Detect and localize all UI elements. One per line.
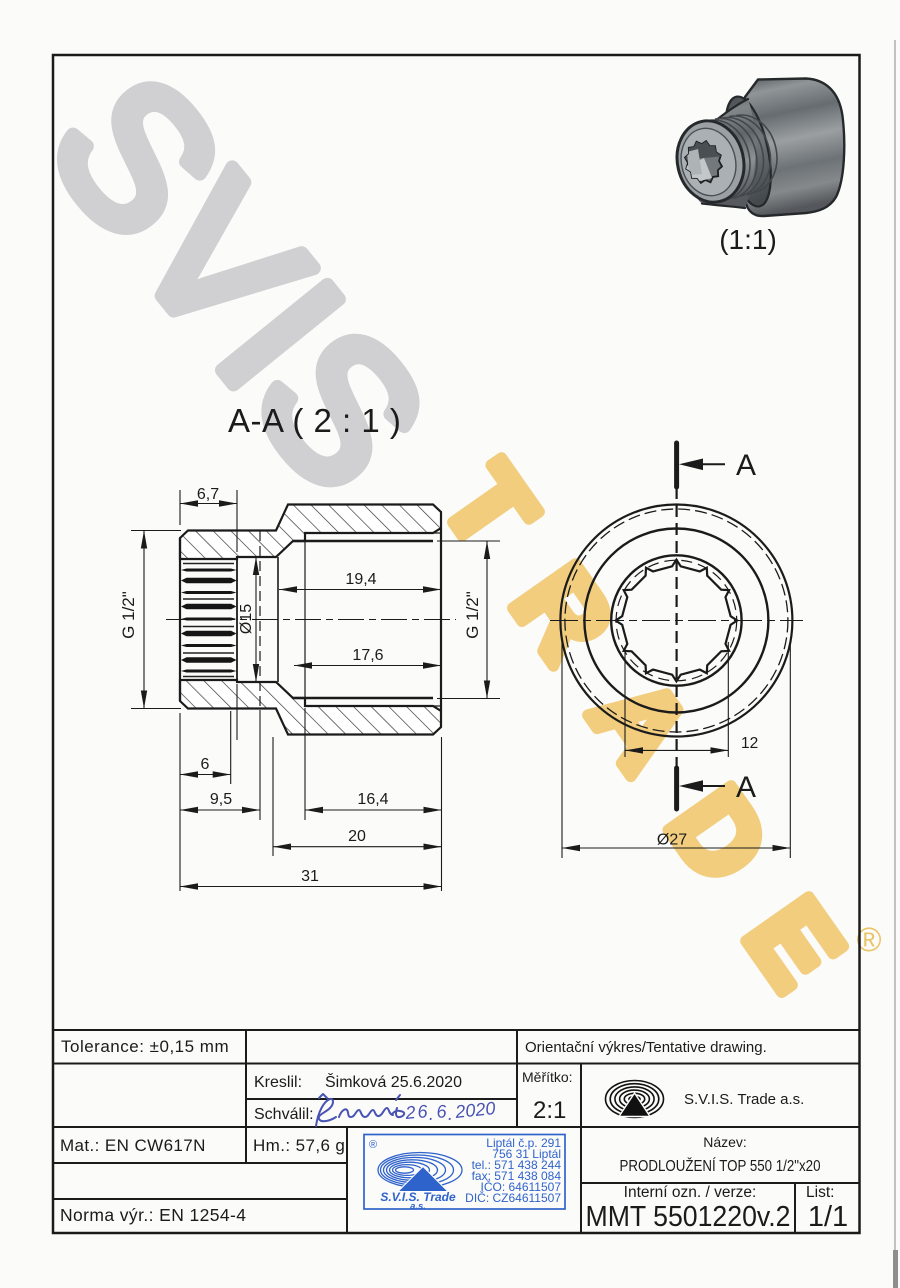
svg-text:G 1/2": G 1/2" — [119, 591, 138, 639]
svg-text:31: 31 — [301, 868, 319, 885]
svg-text:6: 6 — [201, 756, 210, 773]
svg-text:12: 12 — [741, 735, 758, 752]
svg-text:List:: List: — [806, 1184, 834, 1201]
svg-text:S.V.I.S. Trade a.s.: S.V.I.S. Trade a.s. — [684, 1091, 804, 1108]
svg-text:0: 0 — [484, 1098, 496, 1119]
svg-text:Kreslil:: Kreslil: — [254, 1074, 302, 1091]
svg-text:Interní ozn. / verze:: Interní ozn. / verze: — [624, 1184, 757, 1201]
svg-text:MMT 5501220v.2: MMT 5501220v.2 — [586, 1201, 791, 1233]
svg-text:Orientační výkres/Tentative dr: Orientační výkres/Tentative drawing. — [525, 1039, 767, 1056]
svg-text:Hm.: 57,6 g: Hm.: 57,6 g — [253, 1136, 345, 1155]
svg-text:Norma výr.: EN 1254-4: Norma výr.: EN 1254-4 — [60, 1205, 246, 1225]
svg-text:Měřítko:: Měřítko: — [522, 1069, 573, 1085]
svg-text:®: ® — [369, 1139, 377, 1151]
svg-text:2: 2 — [404, 1102, 417, 1123]
svg-text:PRODLOUŽENÍ TOP 550 1/2"x20: PRODLOUŽENÍ TOP 550 1/2"x20 — [620, 1158, 821, 1175]
svg-text:Schválil:: Schválil: — [254, 1106, 314, 1123]
svg-text:(1:1): (1:1) — [719, 224, 777, 255]
svg-text:Mat.: EN CW617N: Mat.: EN CW617N — [60, 1136, 206, 1155]
svg-text:Název:: Název: — [703, 1134, 747, 1150]
svg-text:DIČ: CZ64611507: DIČ: CZ64611507 — [465, 1190, 561, 1205]
svg-text:16,4: 16,4 — [357, 791, 388, 808]
svg-text:G 1/2": G 1/2" — [463, 591, 482, 639]
svg-text:1/1: 1/1 — [808, 1201, 848, 1233]
svg-text:Šimková 25.6.2020: Šimková 25.6.2020 — [325, 1072, 462, 1091]
svg-text:17,6: 17,6 — [352, 647, 383, 664]
svg-text:6,7: 6,7 — [197, 486, 219, 503]
svg-text:2:1: 2:1 — [533, 1097, 566, 1124]
svg-text:Ø15: Ø15 — [238, 604, 255, 634]
svg-text:Tolerance: ±0,15 mm: Tolerance: ±0,15 mm — [61, 1037, 229, 1056]
svg-text:A: A — [736, 449, 756, 482]
svg-text:20: 20 — [348, 828, 366, 845]
svg-text:Ø27: Ø27 — [657, 832, 687, 849]
svg-text:9,5: 9,5 — [210, 791, 232, 808]
svg-text:a.s.: a.s. — [410, 1201, 426, 1212]
svg-text:19,4: 19,4 — [345, 571, 376, 588]
svg-text:A: A — [736, 771, 756, 804]
svg-text:A-A ( 2 : 1 ): A-A ( 2 : 1 ) — [228, 402, 401, 439]
